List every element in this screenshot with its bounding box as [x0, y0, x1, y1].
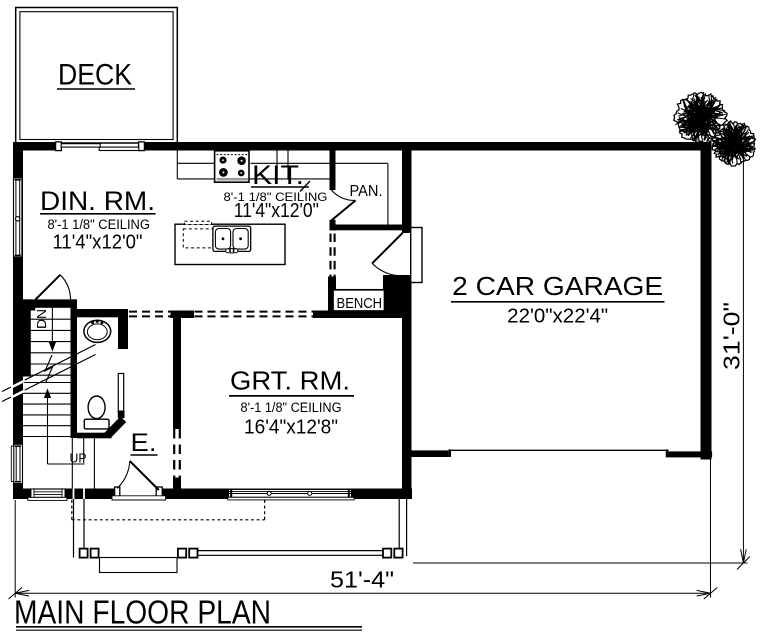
- svg-text:8'-1 1/8" CEILING: 8'-1 1/8" CEILING: [241, 400, 342, 415]
- svg-text:8'-1 1/8" CEILING: 8'-1 1/8" CEILING: [47, 217, 150, 232]
- svg-text:11'4"x12'0": 11'4"x12'0": [234, 200, 319, 222]
- svg-text:11'4"x12'0": 11'4"x12'0": [53, 232, 143, 254]
- svg-text:16'4"x12'8": 16'4"x12'8": [244, 416, 338, 439]
- svg-text:BENCH: BENCH: [337, 296, 383, 312]
- svg-text:2 CAR GARAGE: 2 CAR GARAGE: [452, 271, 663, 301]
- svg-text:GRT. RM.: GRT. RM.: [230, 368, 350, 396]
- svg-text:DIN. RM.: DIN. RM.: [40, 186, 155, 216]
- svg-text:DN.: DN.: [35, 305, 49, 329]
- svg-text:PAN.: PAN.: [350, 183, 383, 200]
- svg-text:MAIN FLOOR PLAN: MAIN FLOOR PLAN: [14, 594, 271, 631]
- svg-text:22'0"x22'4": 22'0"x22'4": [507, 306, 608, 328]
- svg-text:51'-4": 51'-4": [330, 567, 394, 593]
- svg-text:E.: E.: [131, 429, 157, 457]
- svg-text:DECK: DECK: [58, 59, 132, 92]
- svg-text:31'-0": 31'-0": [719, 302, 745, 370]
- svg-text:KIT.: KIT.: [252, 160, 304, 190]
